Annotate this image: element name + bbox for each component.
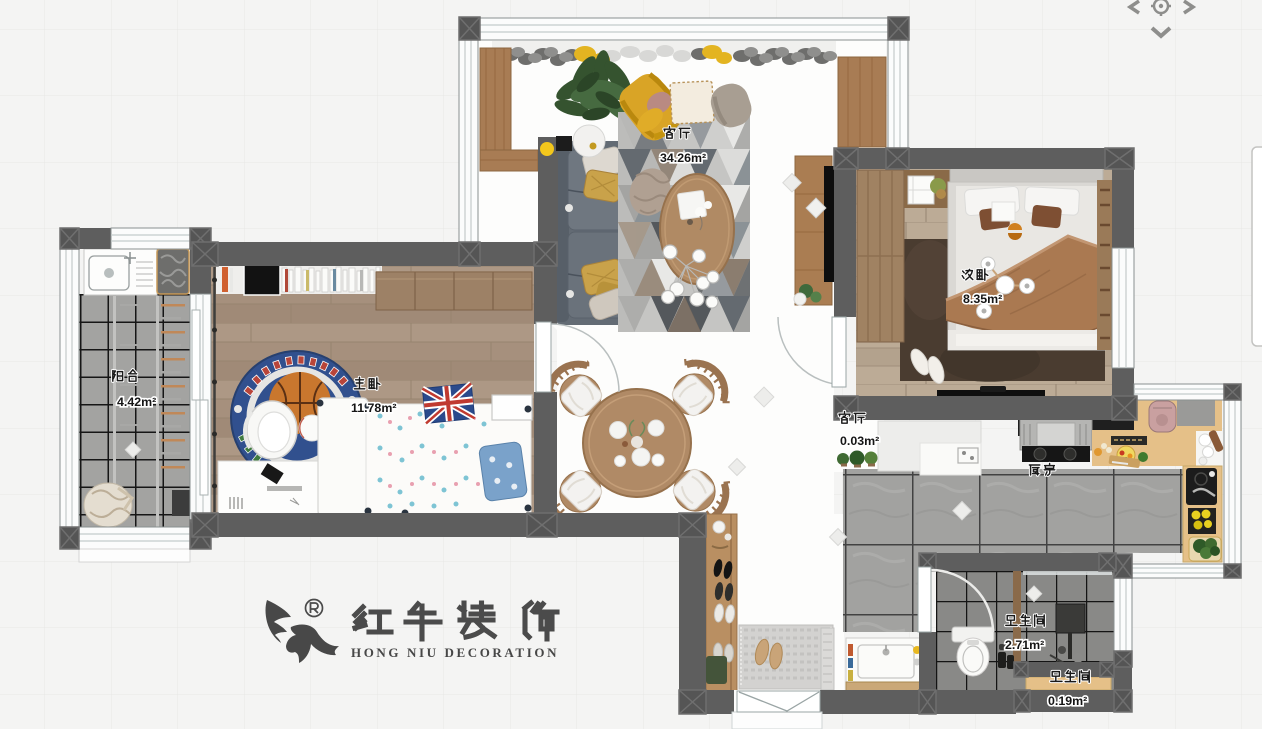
svg-text:0.19m²: 0.19m² (1048, 694, 1087, 708)
svg-text:11.78m²: 11.78m² (351, 401, 396, 415)
svg-text:34.26m²: 34.26m² (660, 151, 706, 165)
svg-text:2.71m²: 2.71m² (1005, 638, 1044, 652)
svg-text:8.35m²: 8.35m² (963, 292, 1002, 306)
svg-text:4.42m²: 4.42m² (117, 395, 156, 409)
svg-text:HONG NIU DECORATION: HONG NIU DECORATION (351, 645, 559, 660)
svg-text:0.03m²: 0.03m² (840, 434, 879, 448)
